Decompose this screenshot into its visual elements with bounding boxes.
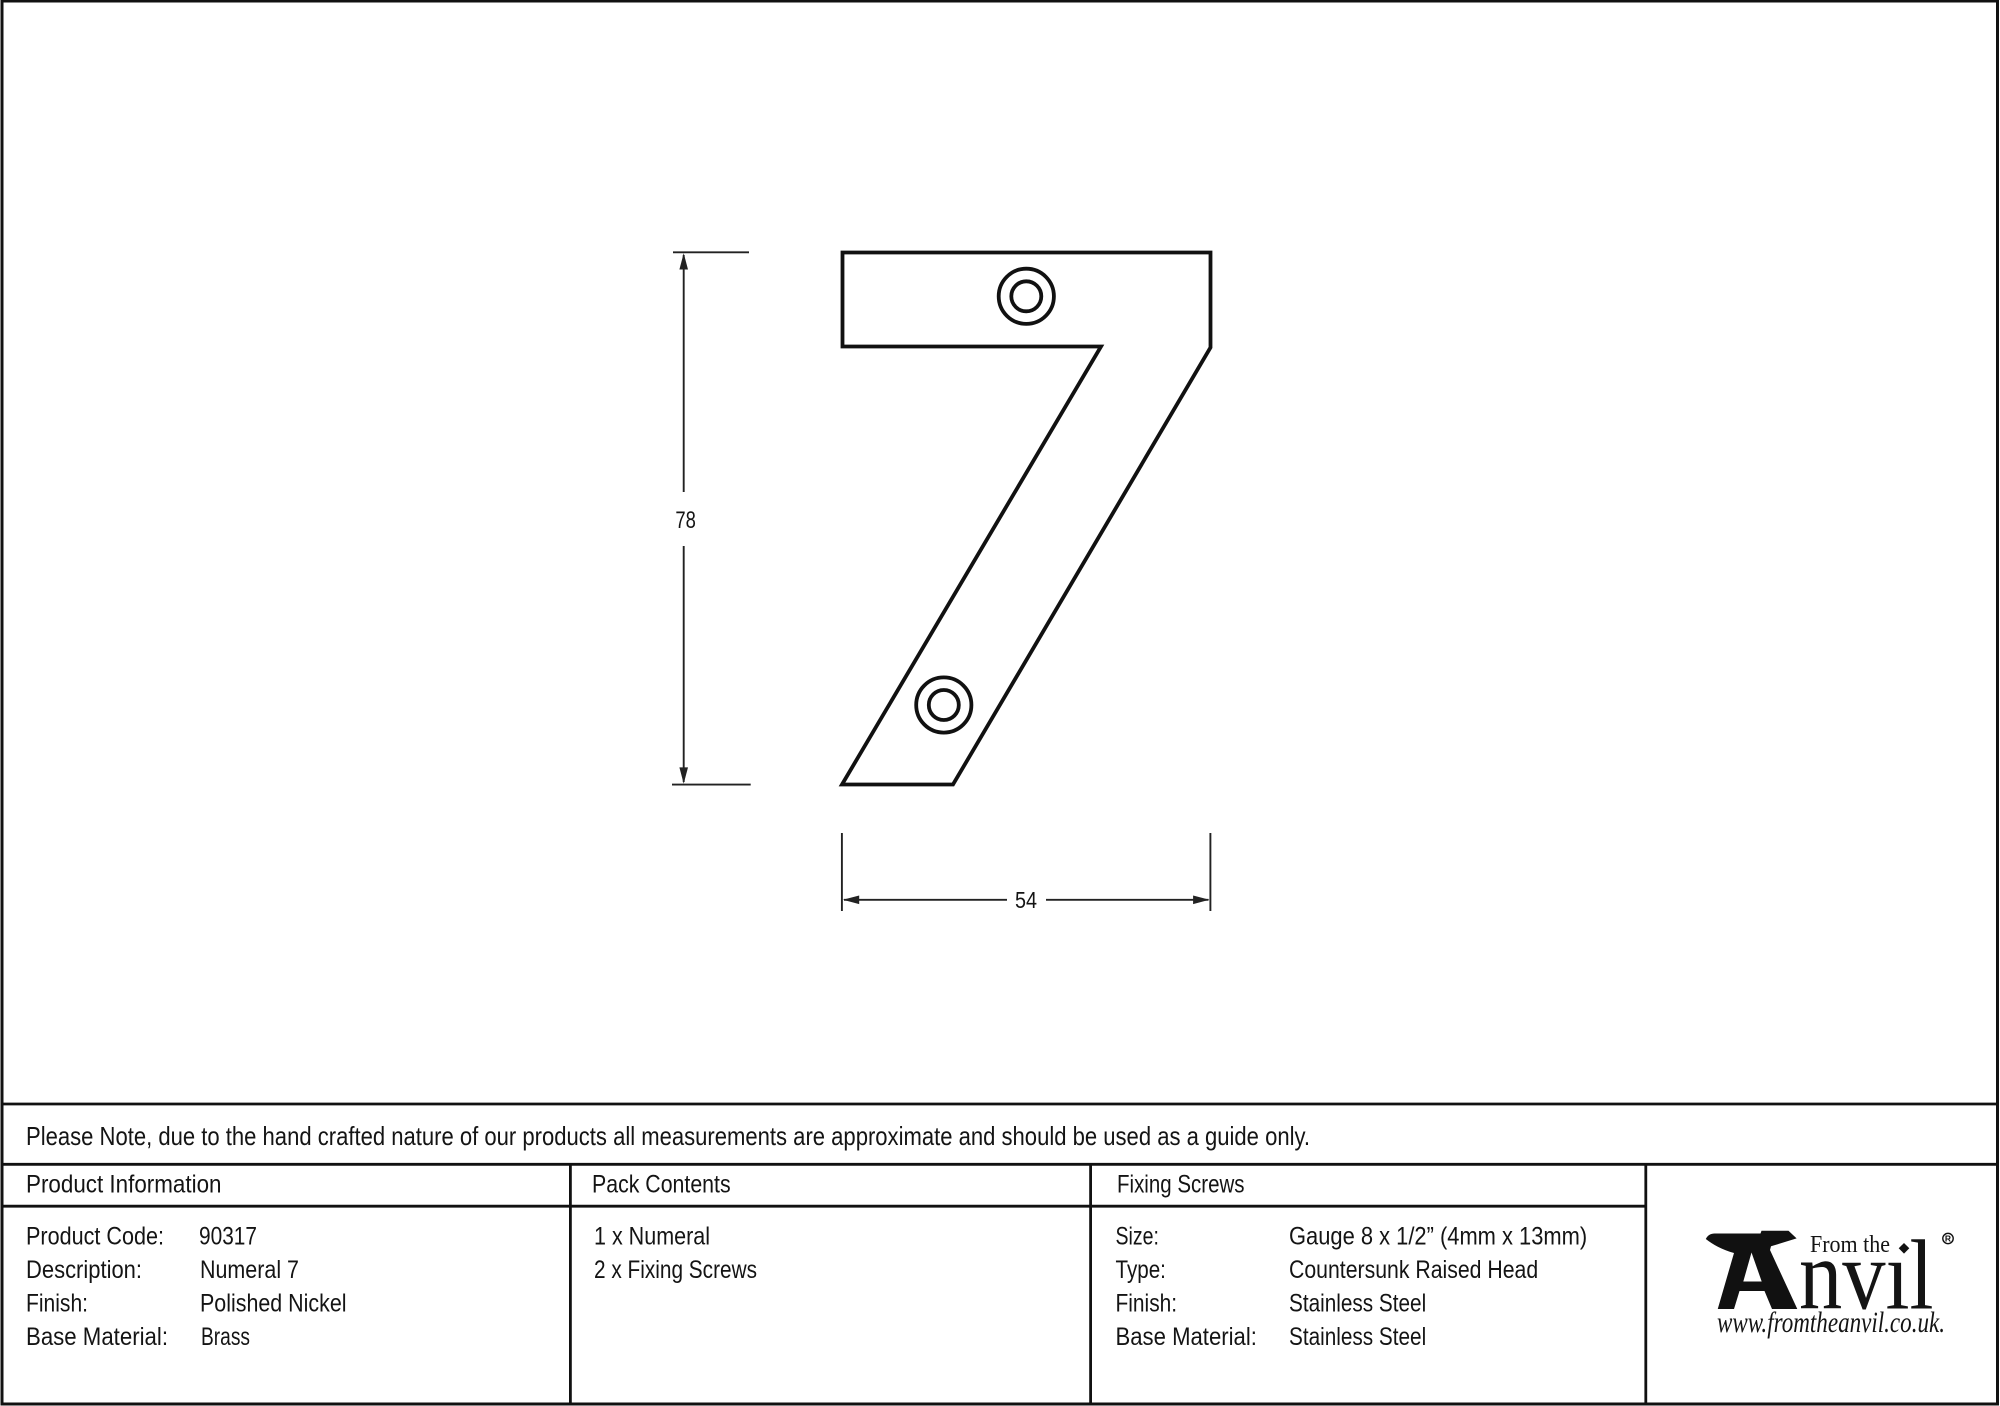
svg-text:Please Note, due to the hand c: Please Note, due to the hand crafted nat… xyxy=(26,1121,1310,1151)
svg-text:Pack Contents: Pack Contents xyxy=(592,1171,731,1199)
svg-text:Base Material:: Base Material: xyxy=(1116,1323,1257,1351)
svg-text:1 x Numeral: 1 x Numeral xyxy=(594,1223,710,1251)
svg-text:Product Information: Product Information xyxy=(26,1171,222,1199)
svg-text:54: 54 xyxy=(1015,887,1037,913)
svg-text:Gauge 8 x 1/2” (4mm x 13mm): Gauge 8 x 1/2” (4mm x 13mm) xyxy=(1289,1223,1587,1251)
svg-text:Finish:: Finish: xyxy=(1116,1290,1178,1318)
svg-text:Brass: Brass xyxy=(201,1323,250,1351)
svg-text:90317: 90317 xyxy=(199,1223,257,1251)
svg-text:Type:: Type: xyxy=(1116,1256,1166,1284)
svg-text:Description:: Description: xyxy=(26,1256,142,1284)
svg-text:Base Material:: Base Material: xyxy=(26,1323,168,1351)
svg-text:Finish:: Finish: xyxy=(26,1290,88,1318)
svg-text:www.fromtheanvil.co.uk.: www.fromtheanvil.co.uk. xyxy=(1717,1306,1945,1339)
svg-text:78: 78 xyxy=(675,507,696,534)
svg-text:Size:: Size: xyxy=(1116,1223,1159,1251)
svg-text:2 x Fixing Screws: 2 x Fixing Screws xyxy=(594,1256,757,1284)
svg-text:R: R xyxy=(1945,1234,1951,1244)
svg-text:Stainless Steel: Stainless Steel xyxy=(1289,1290,1426,1318)
svg-text:Polished Nickel: Polished Nickel xyxy=(200,1290,347,1318)
svg-text:Product Code:: Product Code: xyxy=(26,1223,164,1251)
svg-text:Stainless Steel: Stainless Steel xyxy=(1289,1323,1426,1351)
svg-text:Fixing Screws: Fixing Screws xyxy=(1117,1171,1245,1199)
svg-text:Numeral 7: Numeral 7 xyxy=(200,1256,299,1284)
svg-text:Countersunk Raised Head: Countersunk Raised Head xyxy=(1289,1256,1538,1284)
